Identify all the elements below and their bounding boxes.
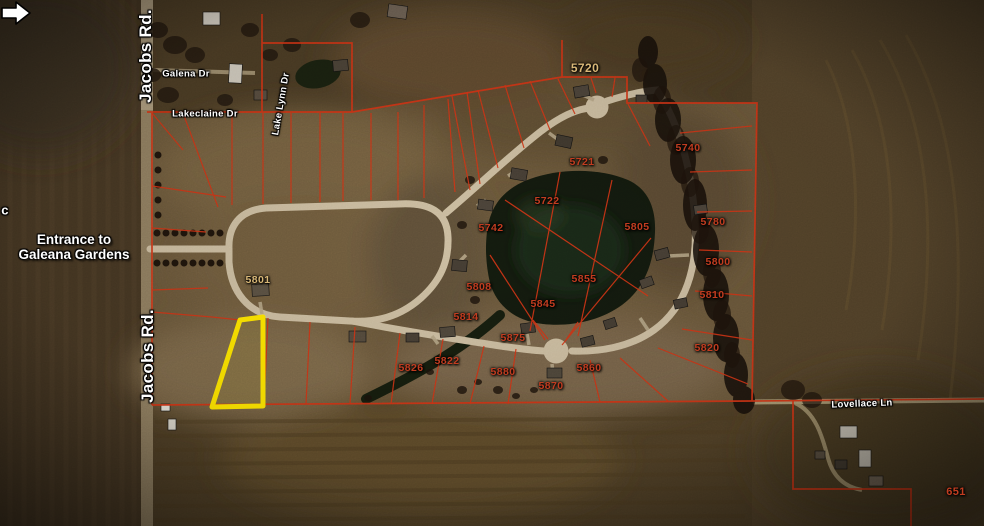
vignette [0,0,984,526]
aerial-imagery [0,0,984,526]
entrance-annotation-line1: Entrance to [16,233,132,248]
entrance-annotation: Entrance to Galeana Gardens [16,233,132,263]
entrance-arrow-icon [0,0,32,26]
entrance-annotation-line2: Galeana Gardens [16,248,132,263]
aerial-plat-map[interactable]: Entrance to Galeana Gardens Jacobs Rd.Ja… [0,0,984,526]
